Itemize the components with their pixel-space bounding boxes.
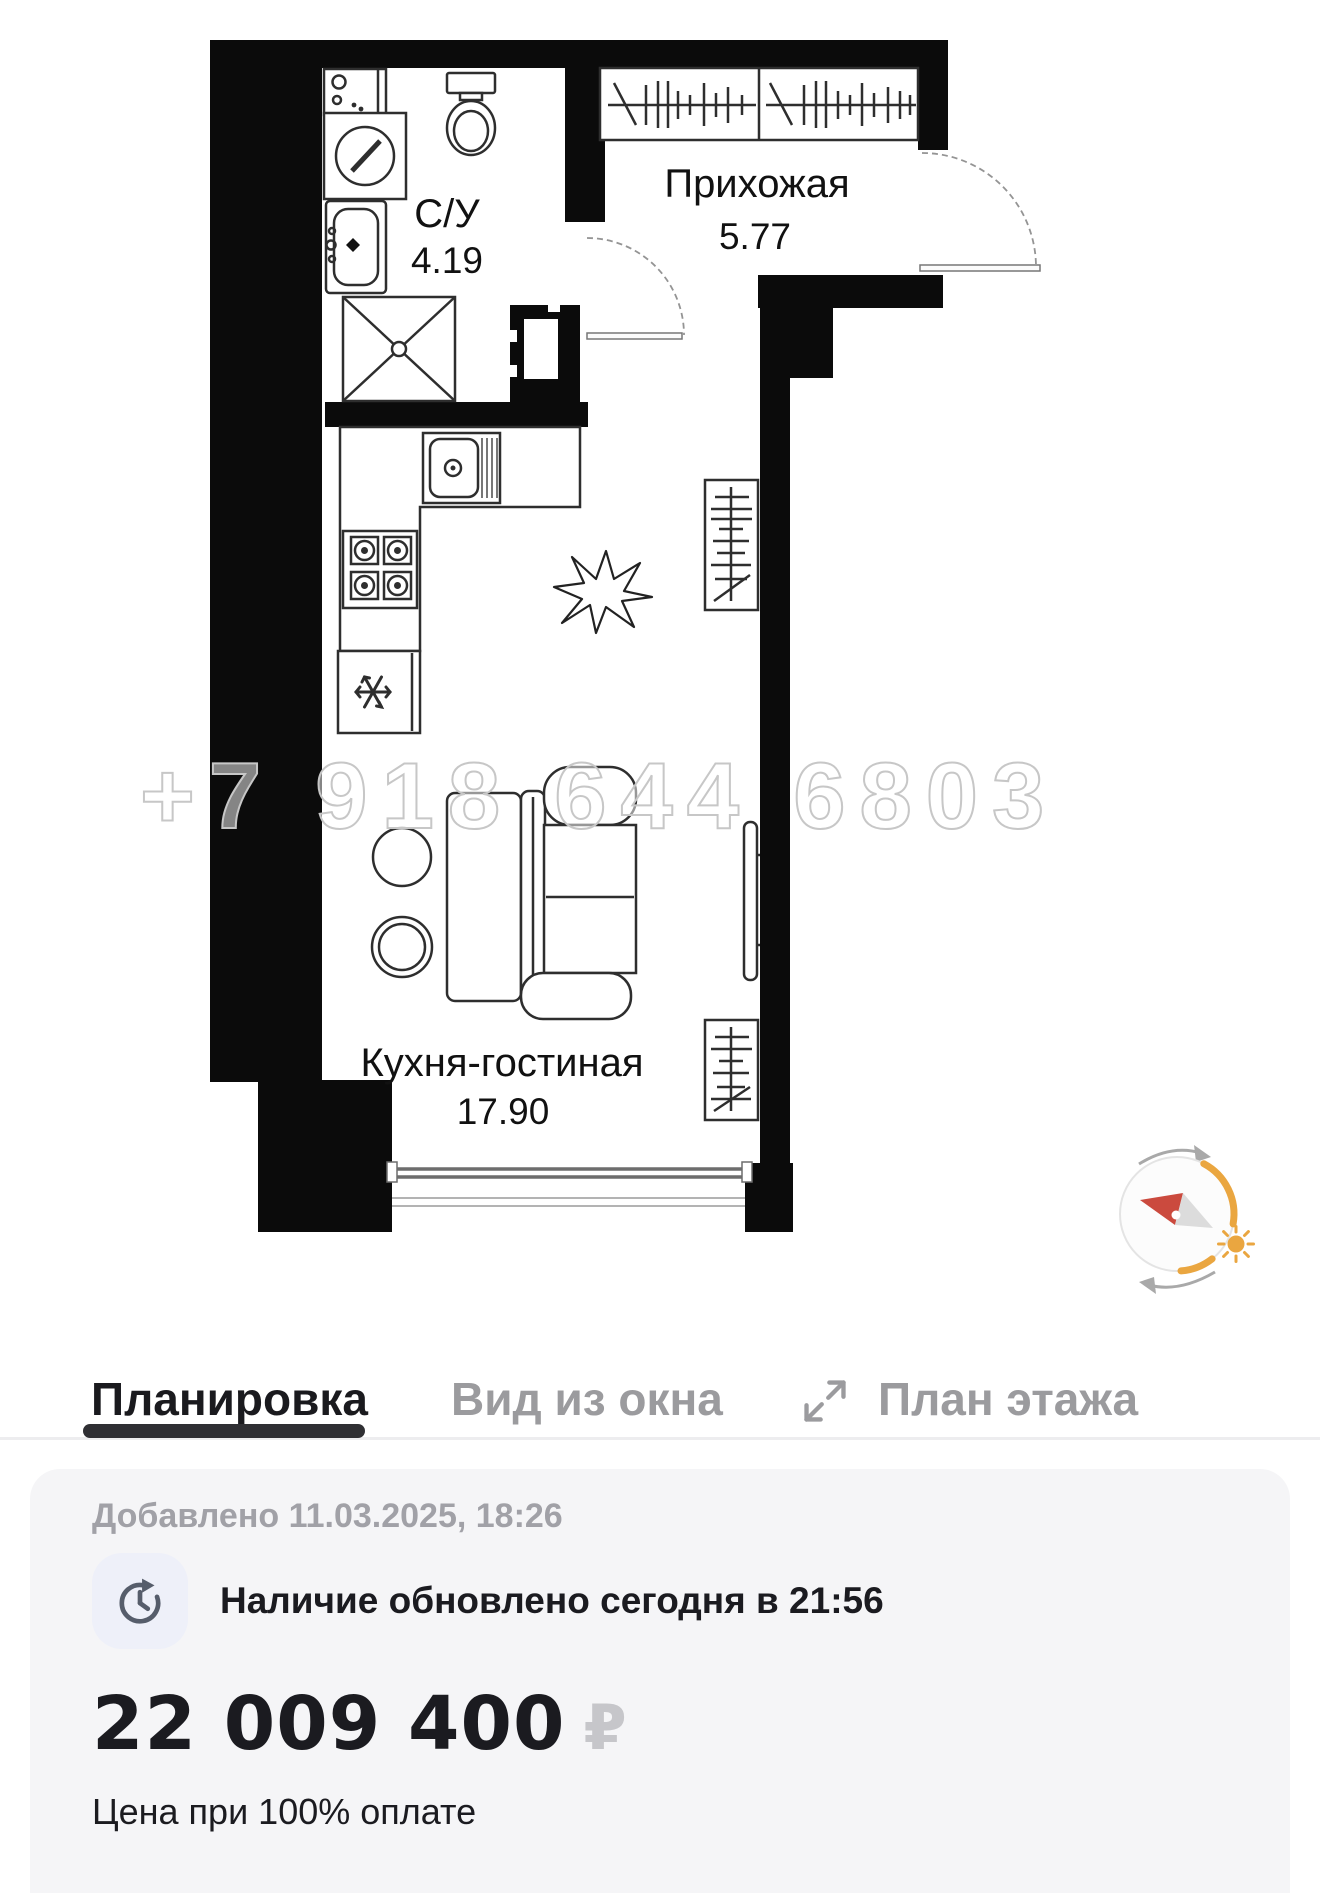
- floor-plan: С/У 4.19 Прихожая 5.77 Кухня-гостиная 17…: [210, 35, 1060, 1235]
- ruble-sign: ₽: [583, 1691, 626, 1764]
- room-label-kitchen-living: Кухня-гостиная: [361, 1041, 644, 1085]
- washing-machine: [324, 113, 406, 199]
- price-note: Цена при 100% оплате: [92, 1791, 476, 1833]
- window: [387, 1162, 752, 1206]
- wardrobe-upper: [705, 480, 758, 610]
- entrance-door: [920, 153, 1040, 271]
- vent-shaft: [510, 305, 580, 402]
- toilet: [447, 73, 495, 155]
- tab-floor-plan[interactable]: План этажа: [878, 1372, 1138, 1426]
- room-area-kitchen-living: 17.90: [457, 1091, 550, 1132]
- shower: [343, 297, 455, 401]
- tab-window-view[interactable]: Вид из окна: [451, 1372, 723, 1426]
- floor-plan-viewer: С/У 4.19 Прихожая 5.77 Кухня-гостиная 17…: [0, 0, 1320, 1330]
- watermark: +7 918 644 6803: [140, 742, 1260, 850]
- listing-card: Добавлено 11.03.2025, 18:26 Наличие обно…: [30, 1469, 1290, 1893]
- tab-layout[interactable]: Планировка: [91, 1372, 368, 1426]
- wardrobe-lower: [705, 1020, 758, 1120]
- room-label-bathroom: С/У: [414, 192, 480, 236]
- active-tab-underline: [83, 1424, 365, 1438]
- plant: [554, 551, 652, 633]
- compass-icon: [1105, 1138, 1265, 1303]
- tab-bar: Планировка Вид из окна План этажа: [0, 1368, 1320, 1448]
- expand-icon[interactable]: [800, 1376, 850, 1426]
- fridge: [338, 651, 420, 733]
- bathroom-door: [587, 238, 684, 339]
- sun-icon: [1219, 1227, 1254, 1262]
- room-label-hallway: Прихожая: [664, 162, 849, 206]
- stove: [343, 531, 417, 608]
- vanity-counter: [324, 69, 386, 115]
- room-area-bathroom: 4.19: [411, 240, 483, 281]
- bathroom-sink: [326, 201, 386, 293]
- price-row: 22 009 400 ₽: [92, 1681, 627, 1767]
- hall-wardrobe: [600, 68, 918, 140]
- room-area-hallway: 5.77: [719, 216, 791, 257]
- coffee-tables: [372, 828, 432, 977]
- added-date: Добавлено 11.03.2025, 18:26: [92, 1497, 563, 1536]
- price-value: 22 009 400: [92, 1681, 565, 1767]
- availability-clock-badge: [92, 1553, 188, 1649]
- kitchen-sink: [423, 433, 500, 503]
- clock-refresh-icon: [113, 1574, 167, 1628]
- availability-text: Наличие обновлено сегодня в 21:56: [220, 1553, 884, 1649]
